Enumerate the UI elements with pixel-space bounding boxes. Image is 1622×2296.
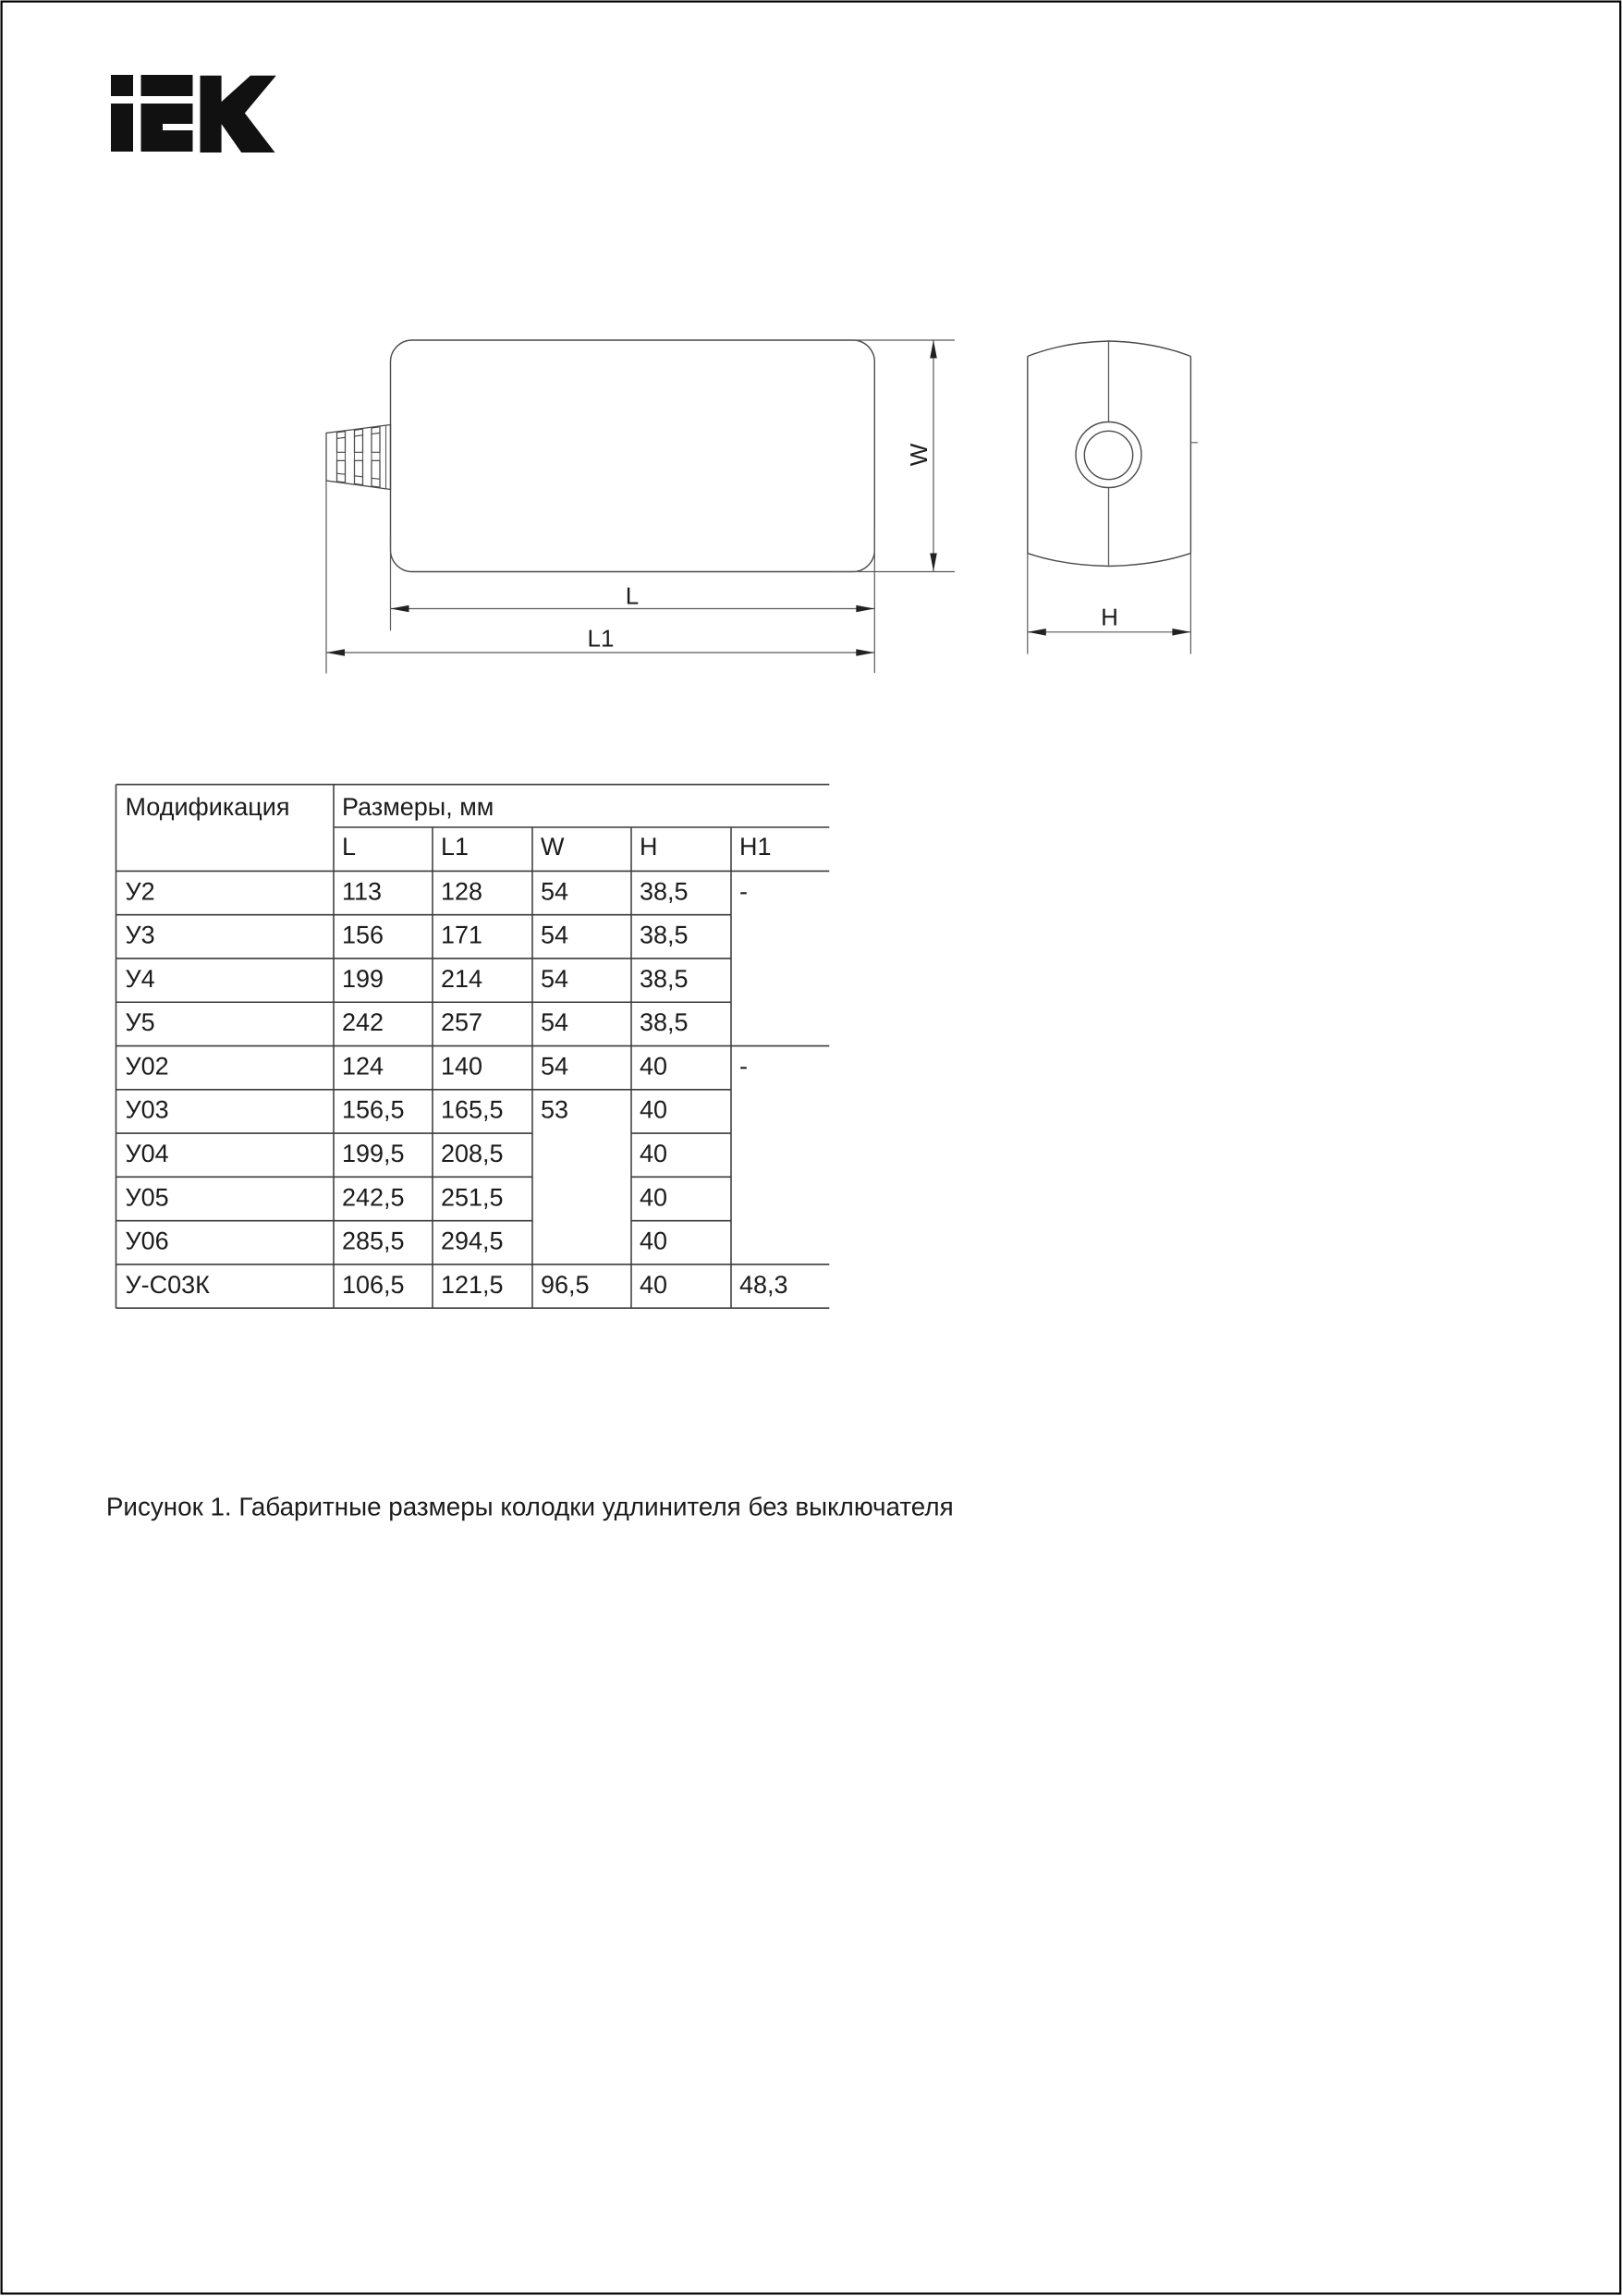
svg-text:53: 53 xyxy=(541,1096,568,1124)
svg-text:40: 40 xyxy=(640,1271,667,1299)
svg-text:У02: У02 xyxy=(126,1052,169,1080)
svg-text:251,5: 251,5 xyxy=(441,1183,504,1211)
svg-text:Рисунок 1. Габаритные размеры: Рисунок 1. Габаритные размеры колодки уд… xyxy=(106,1493,954,1521)
svg-text:54: 54 xyxy=(541,877,568,905)
svg-text:165,5: 165,5 xyxy=(441,1096,504,1124)
svg-text:257: 257 xyxy=(441,1008,482,1036)
svg-text:242: 242 xyxy=(342,1008,384,1036)
svg-text:54: 54 xyxy=(541,1008,568,1036)
svg-text:У-С03К: У-С03К xyxy=(126,1271,211,1299)
svg-text:171: 171 xyxy=(441,922,482,949)
svg-text:У2: У2 xyxy=(126,877,155,905)
svg-text:140: 140 xyxy=(441,1052,482,1080)
svg-text:40: 40 xyxy=(640,1052,667,1080)
svg-text:У04: У04 xyxy=(126,1140,169,1167)
svg-text:У03: У03 xyxy=(126,1096,169,1124)
svg-text:H: H xyxy=(640,833,658,861)
svg-text:40: 40 xyxy=(640,1096,667,1124)
svg-text:54: 54 xyxy=(541,922,568,949)
svg-text:H1: H1 xyxy=(739,833,772,861)
svg-text:121,5: 121,5 xyxy=(441,1271,504,1299)
svg-text:113: 113 xyxy=(342,877,382,905)
svg-text:-: - xyxy=(739,877,748,905)
svg-text:294,5: 294,5 xyxy=(441,1227,504,1255)
svg-text:54: 54 xyxy=(541,965,568,993)
svg-text:38,5: 38,5 xyxy=(640,1008,689,1036)
svg-text:38,5: 38,5 xyxy=(640,965,689,993)
svg-text:156: 156 xyxy=(342,922,384,949)
svg-text:L: L xyxy=(626,582,639,610)
svg-text:96,5: 96,5 xyxy=(541,1271,590,1299)
svg-text:H: H xyxy=(1101,604,1118,631)
svg-text:124: 124 xyxy=(342,1052,384,1080)
svg-text:40: 40 xyxy=(640,1227,667,1255)
svg-text:106,5: 106,5 xyxy=(342,1271,405,1299)
svg-text:199,5: 199,5 xyxy=(342,1140,405,1167)
svg-text:208,5: 208,5 xyxy=(441,1140,504,1167)
svg-text:L1: L1 xyxy=(441,833,469,861)
svg-text:285,5: 285,5 xyxy=(342,1227,405,1255)
svg-text:156,5: 156,5 xyxy=(342,1096,405,1124)
svg-text:У05: У05 xyxy=(126,1183,169,1211)
svg-text:40: 40 xyxy=(640,1140,667,1167)
svg-text:У4: У4 xyxy=(126,965,155,993)
svg-text:W: W xyxy=(541,833,565,861)
svg-text:54: 54 xyxy=(541,1052,568,1080)
svg-text:48,3: 48,3 xyxy=(739,1271,788,1299)
svg-text:199: 199 xyxy=(342,965,384,993)
svg-text:128: 128 xyxy=(441,877,482,905)
svg-text:W: W xyxy=(905,443,933,466)
svg-text:242,5: 242,5 xyxy=(342,1183,405,1211)
svg-text:40: 40 xyxy=(640,1183,667,1211)
svg-text:38,5: 38,5 xyxy=(640,922,689,949)
svg-text:Размеры, мм: Размеры, мм xyxy=(342,793,494,821)
svg-text:У5: У5 xyxy=(126,1008,155,1036)
svg-text:У06: У06 xyxy=(126,1227,169,1255)
svg-text:-: - xyxy=(739,1052,748,1080)
svg-text:L1: L1 xyxy=(588,625,615,653)
svg-text:Модификация: Модификация xyxy=(126,793,290,821)
svg-text:38,5: 38,5 xyxy=(640,877,689,905)
svg-text:214: 214 xyxy=(441,965,482,993)
svg-text:L: L xyxy=(342,833,356,861)
svg-text:У3: У3 xyxy=(126,922,155,949)
